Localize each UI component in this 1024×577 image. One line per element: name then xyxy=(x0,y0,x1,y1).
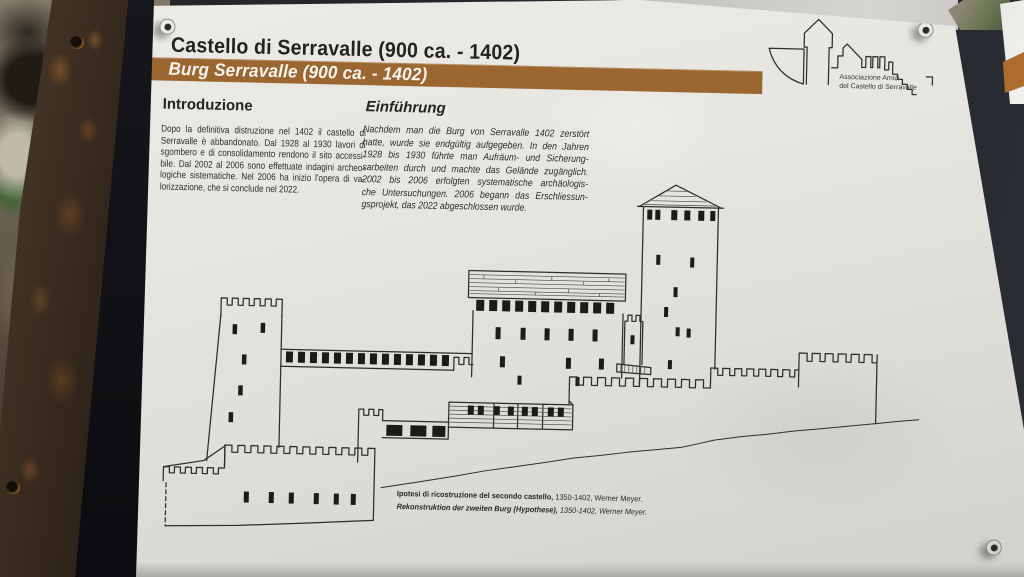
palazzo-walls xyxy=(472,311,623,380)
association-logo: Associazione Amici del Castello di Serra… xyxy=(766,16,948,94)
outer-wall-crenellation xyxy=(163,444,225,482)
left-tower-left-side xyxy=(207,314,221,461)
information-panel: Castello di Serravalle (900 ca. - 1402) … xyxy=(0,0,1024,577)
bolt-top-left xyxy=(159,18,175,34)
great-tower-roof-hatching xyxy=(645,191,717,207)
great-tower-walls xyxy=(639,206,718,385)
curtain-wall-end-crenellation xyxy=(454,357,473,370)
photo-of-information-panel: Castello di Serravalle (900 ca. - 1402) … xyxy=(0,0,1024,577)
enclosure-windows xyxy=(244,491,356,505)
palazzo-merlons xyxy=(476,300,614,314)
front-wall-crenellation xyxy=(569,377,711,407)
heading-italian: Introduzione xyxy=(162,96,252,115)
ground-line xyxy=(381,408,919,500)
panel-title-german: Burg Serravalle (900 ca. - 1402) xyxy=(168,59,427,86)
right-parapet-lower xyxy=(710,368,798,390)
logo-text-line1: Associazione Amici xyxy=(839,74,900,82)
enclosure-left-edge xyxy=(165,483,166,526)
right-parapet-upper xyxy=(798,353,878,424)
logo-text-line2: del Castello di Serravalle xyxy=(839,83,917,92)
post-hole-bottom xyxy=(6,481,20,494)
left-tower-battlement xyxy=(221,298,282,317)
caption-de-label: Rekonstruktion der zweiten Burg (Hypothe… xyxy=(397,502,558,515)
palazzo-roof-hatching xyxy=(469,275,624,298)
post-hole-top xyxy=(70,36,84,49)
enclosure-crenellation xyxy=(224,445,374,470)
caption-de-credit: 1350-1402, Werner Meyer. xyxy=(558,506,647,517)
lower-gallery-openings xyxy=(386,425,445,437)
great-tower-top-windows xyxy=(647,210,715,222)
ramp-line xyxy=(163,445,224,468)
logo-fan-shape xyxy=(768,48,804,84)
great-tower-windows xyxy=(654,255,695,370)
logo-step-mark xyxy=(926,77,932,85)
left-tower-right-side xyxy=(279,315,282,447)
panel-content: Castello di Serravalle (900 ca. - 1402) … xyxy=(126,2,1019,577)
bolt-bottom-right xyxy=(986,539,1002,555)
heading-german: Einführung xyxy=(365,98,445,117)
logo-tower xyxy=(803,19,832,85)
curtain-wall-merlons xyxy=(286,351,449,366)
caption-it-credit: 1350-1402, Werner Meyer. xyxy=(553,493,642,504)
